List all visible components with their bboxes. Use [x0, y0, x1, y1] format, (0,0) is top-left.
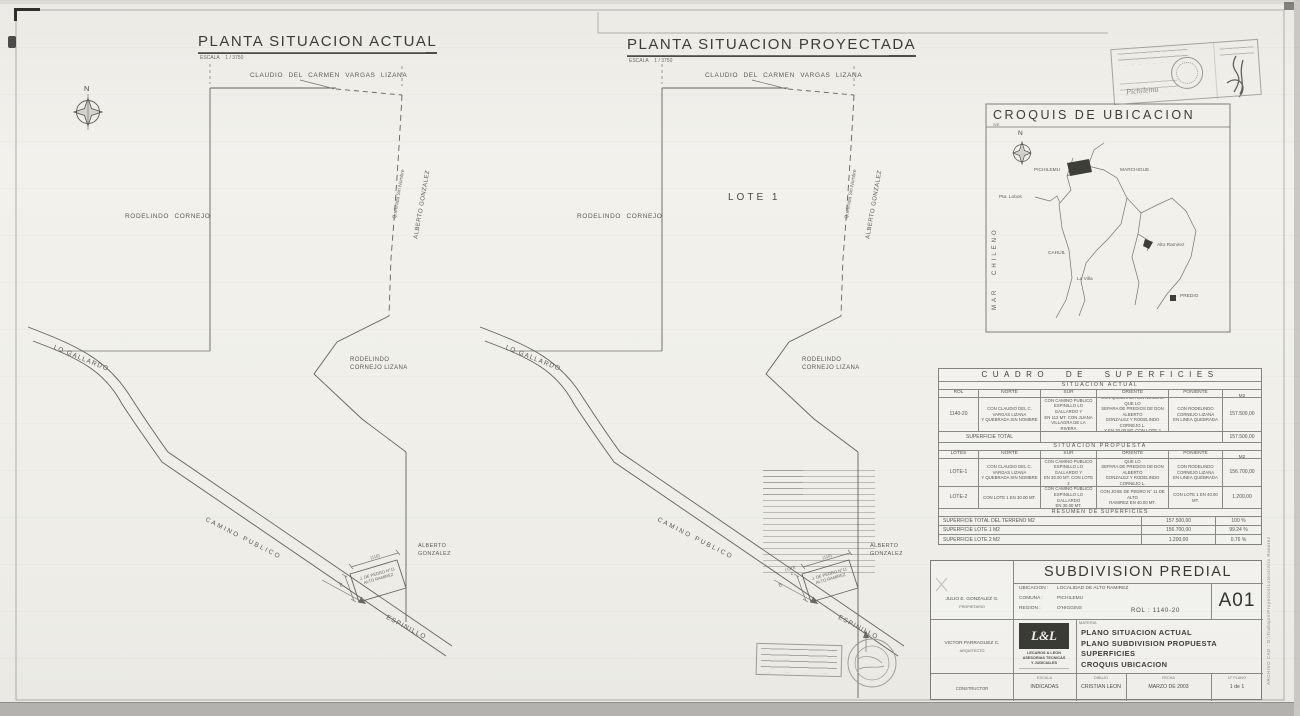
field-region-label: REGION :	[1019, 606, 1041, 612]
field-ubicacion-label: UBICACION :	[1019, 586, 1048, 592]
town-la-villa: La Villa	[1077, 277, 1093, 283]
scan-artifact	[8, 36, 16, 48]
propietario-name: JULIO E. GONZALEZ G.	[933, 597, 1011, 603]
cell-lote1-oriente: CON QUEBRADA SIN NOMBRE QUE LO SEPARA DE…	[1097, 459, 1169, 487]
cell-lote2-superficie: 1.200,00	[1223, 487, 1261, 509]
town-cahuil: CAHUIL	[1048, 251, 1066, 257]
cell-norte: CON CLAUDIO DEL C. VARGAS LIZANA Y QUEBR…	[979, 398, 1041, 432]
croquis-scale: S/E	[993, 123, 999, 128]
cell-superficie: 157.500,00	[1223, 398, 1261, 432]
scale-label: ESCALA	[200, 55, 220, 61]
col-header: ORIENTE	[1097, 390, 1169, 398]
cell-lote2-poniente: CON LOTE 1 EN 40.00 MT.	[1169, 487, 1223, 509]
north-letter: N	[84, 84, 89, 93]
town-marchigue: MARCHIGUE	[1120, 168, 1149, 174]
arquitecto-role: ARQUITECTO	[933, 649, 1011, 654]
firm-logo-mark: L&L	[1031, 628, 1057, 644]
scan-edge-bottom	[0, 702, 1300, 716]
scan-edge-top	[0, 0, 1300, 4]
scanned-subdivision-plan: { "plan_actual": { "title": "PLANTA SITU…	[0, 0, 1300, 716]
col-header: LOTES	[939, 451, 979, 459]
stamp-divider	[1213, 43, 1218, 99]
scale-label: ESCALA	[629, 58, 649, 64]
field-region-value: O'HIGGINS	[1057, 606, 1082, 612]
field-comuna-label: COMUNA :	[1019, 596, 1043, 602]
dibujo-value: CRISTIAN LEON	[1076, 684, 1126, 690]
label-sea: MAR CHILENO	[992, 185, 999, 310]
cell-lote1-sur: CON CAMINO PUBLICO ESPINILLO LO GALLARDO…	[1041, 459, 1097, 487]
town-pichilemu: PICHILEMU	[1034, 168, 1060, 174]
corner-mark	[14, 8, 17, 21]
col-header: NORTE	[979, 390, 1041, 398]
scan-artifact	[1284, 2, 1294, 10]
resumen-value: 157.500,00	[1141, 517, 1215, 525]
field-rol: ROL : 1140-20	[1131, 608, 1180, 615]
resumen-value: 1.200,00	[1141, 535, 1215, 544]
approval-stamp	[756, 643, 843, 677]
title-underline	[627, 55, 889, 56]
materia-text: PLANO SITUACION ACTUAL PLANO SUBDIVISION…	[1081, 628, 1217, 671]
north-compass	[74, 94, 102, 130]
stamp-text-lines	[1219, 46, 1254, 58]
divider	[1013, 583, 1263, 584]
cuadro-de-superficies: CUADRO DE SUPERFICIES SITUACION ACTUAL R…	[938, 368, 1262, 545]
legend-predio: PREDIO	[1180, 294, 1198, 300]
plan-actual-scale: ESCALA 1 / 3750	[200, 55, 243, 61]
col-header: SUR	[1041, 390, 1097, 398]
label-owner-west: RODELINDO CORNEJO	[577, 213, 662, 221]
divider	[1076, 619, 1077, 673]
cell-lote1-id: LOTE-1	[939, 459, 979, 487]
nplano-label: N° PLANO	[1211, 676, 1263, 681]
town-pta-lobos: Pta. Lobos	[999, 195, 1022, 201]
sheet-number: A01	[1211, 589, 1263, 612]
resumen-title: RESUMEN DE SUPERFICIES	[939, 509, 1261, 517]
constructor-role: CONSTRUCTOR	[933, 686, 1011, 691]
col-header: PONIENTE	[1169, 390, 1223, 398]
resumen-label: SUPERFICIE LOTE 2 M2	[939, 535, 1141, 544]
total-value: 157.500,00	[1223, 432, 1261, 443]
cell-lote1-poniente: CON RODELINDO CORNEJO LIZANA EN LINEA QU…	[1169, 459, 1223, 487]
plan-proyectada-scale: ESCALA 1 / 3750	[629, 58, 672, 64]
resumen-row: SUPERFICIE LOTE 1 M2 156.700,00 99.24 %	[939, 526, 1261, 535]
propietario-role: PROPIETARIO	[933, 605, 1011, 610]
cell-lote2-id: LOTE-2	[939, 487, 979, 509]
faint-annotation-text	[763, 470, 803, 500]
field-comuna-value: PICHILEMU	[1057, 596, 1083, 602]
cell-lote2-norte: CON LOTE 1 EN 30.00 MT.	[979, 487, 1041, 509]
field-ubicacion-value: LOCALIDAD DE ALTO RAMIREZ	[1057, 586, 1128, 592]
label-owner-north: CLAUDIO DEL CARMEN VARGAS LIZANA	[250, 72, 407, 80]
resumen-label: SUPERFICIE LOTE 1 M2	[939, 526, 1141, 534]
total-spacer	[1041, 432, 1223, 443]
resumen-label: SUPERFICIE TOTAL DEL TERRENO M2	[939, 517, 1141, 525]
north-letter: N	[1018, 130, 1023, 138]
divider	[931, 673, 1263, 674]
margin-file-note: ARCHIVO CAD : D:\Trabajos\Proyectos\Lote…	[1266, 535, 1271, 685]
stamp-text-lines	[761, 648, 838, 674]
section-propuesta: SITUACION PROPUESTA	[939, 443, 1261, 451]
cell-lote2-sur: CON CAMINO PUBLICO ESPINILLO LO GALLARDO…	[1041, 487, 1097, 509]
table-title: CUADRO DE SUPERFICIES	[939, 369, 1261, 382]
title-underline	[198, 52, 426, 53]
scale-value: 1 / 3750	[654, 58, 672, 64]
firm-phone-line	[1019, 668, 1069, 669]
firm-logo: L&L	[1019, 623, 1069, 649]
cell-lote1-norte: CON CLAUDIO DEL C. VARGAS LIZANA Y QUEBR…	[979, 459, 1041, 487]
scan-edge-right	[1294, 0, 1300, 716]
col-header: SUR	[1041, 451, 1097, 459]
arquitecto-name: VICTOR PARRAGUEZ C.	[933, 641, 1011, 647]
section-actual: SITUACION ACTUAL	[939, 382, 1261, 390]
divider	[931, 619, 1263, 620]
col-header: ROL	[939, 390, 979, 398]
col-header: NORTE	[979, 451, 1041, 459]
nplano-value: 1 de 1	[1211, 684, 1263, 690]
resumen-value: 156.700,00	[1141, 526, 1215, 534]
fecha-value: MARZO DE 2003	[1126, 684, 1211, 690]
label-owner-north: CLAUDIO DEL CARMEN VARGAS LIZANA	[705, 72, 862, 80]
resumen-pct: 0.76 %	[1215, 535, 1261, 544]
fecha-label: FECHA	[1126, 676, 1211, 681]
resumen-pct: 100 %	[1215, 517, 1261, 525]
label-owner-center: RODELINDO CORNEJO LIZANA	[350, 356, 434, 372]
total-label: SUPERFICIE TOTAL	[939, 432, 1041, 443]
firm-name: LECAROS & LEON ASESORIAS TECNICAS Y JUDI…	[1015, 651, 1073, 666]
title-block: SUBDIVISION PREDIAL A01 UBICACION : LOCA…	[930, 560, 1262, 700]
resumen-pct: 99.24 %	[1215, 526, 1261, 534]
col-header: SUPERFICIE M2	[1223, 390, 1261, 398]
cell-sur: CON CAMINO PUBLICO ESPINILLO LO GALLARDO…	[1041, 398, 1097, 432]
resumen-row: SUPERFICIE TOTAL DEL TERRENO M2 157.500,…	[939, 517, 1261, 526]
cell-poniente: CON RODELINDO CORNEJO LIZANA EN LINEA QU…	[1169, 398, 1223, 432]
label-owner-center: RODELINDO CORNEJO LIZANA	[802, 356, 886, 372]
scale-value: 1 / 3750	[225, 55, 243, 61]
col-header: PONIENTE	[1169, 451, 1223, 459]
label-owner-southeast: ALBERTO GONZALEZ	[418, 543, 451, 558]
cell-oriente: CON QUEBRADA SIN NOMBRE QUE LO SEPARA DE…	[1097, 398, 1169, 432]
cell-rol: 1140-20	[939, 398, 979, 432]
croquis-title: CROQUIS DE UBICACION	[993, 108, 1195, 123]
col-header: ORIENTE	[1097, 451, 1169, 459]
sheet-title: SUBDIVISION PREDIAL	[1013, 564, 1263, 582]
materia-label: MATERIA	[1079, 621, 1096, 626]
stamp-seal-inner	[1175, 61, 1198, 84]
col-header: SUPERFICIE M2	[1223, 451, 1261, 459]
town-alto-ramirez: Alto Ramirez	[1157, 243, 1184, 249]
resumen-row: SUPERFICIE LOTE 2 M2 1.200,00 0.76 %	[939, 535, 1261, 544]
dibujo-label: DIBUJO	[1076, 676, 1126, 681]
label-owner-west: RODELINDO CORNEJO	[125, 213, 210, 221]
escala-value: INDICADAS	[1013, 684, 1076, 690]
cell-lote2-oriente: CON JOSE DE PEDRO N° 11 DE ALTO RAMIREZ …	[1097, 487, 1169, 509]
corner-mark	[14, 8, 40, 11]
label-lote1: LOTE 1	[728, 192, 780, 204]
cell-lote1-superficie: 156.700,00	[1223, 459, 1261, 487]
escala-label: ESCALA	[1013, 676, 1076, 681]
